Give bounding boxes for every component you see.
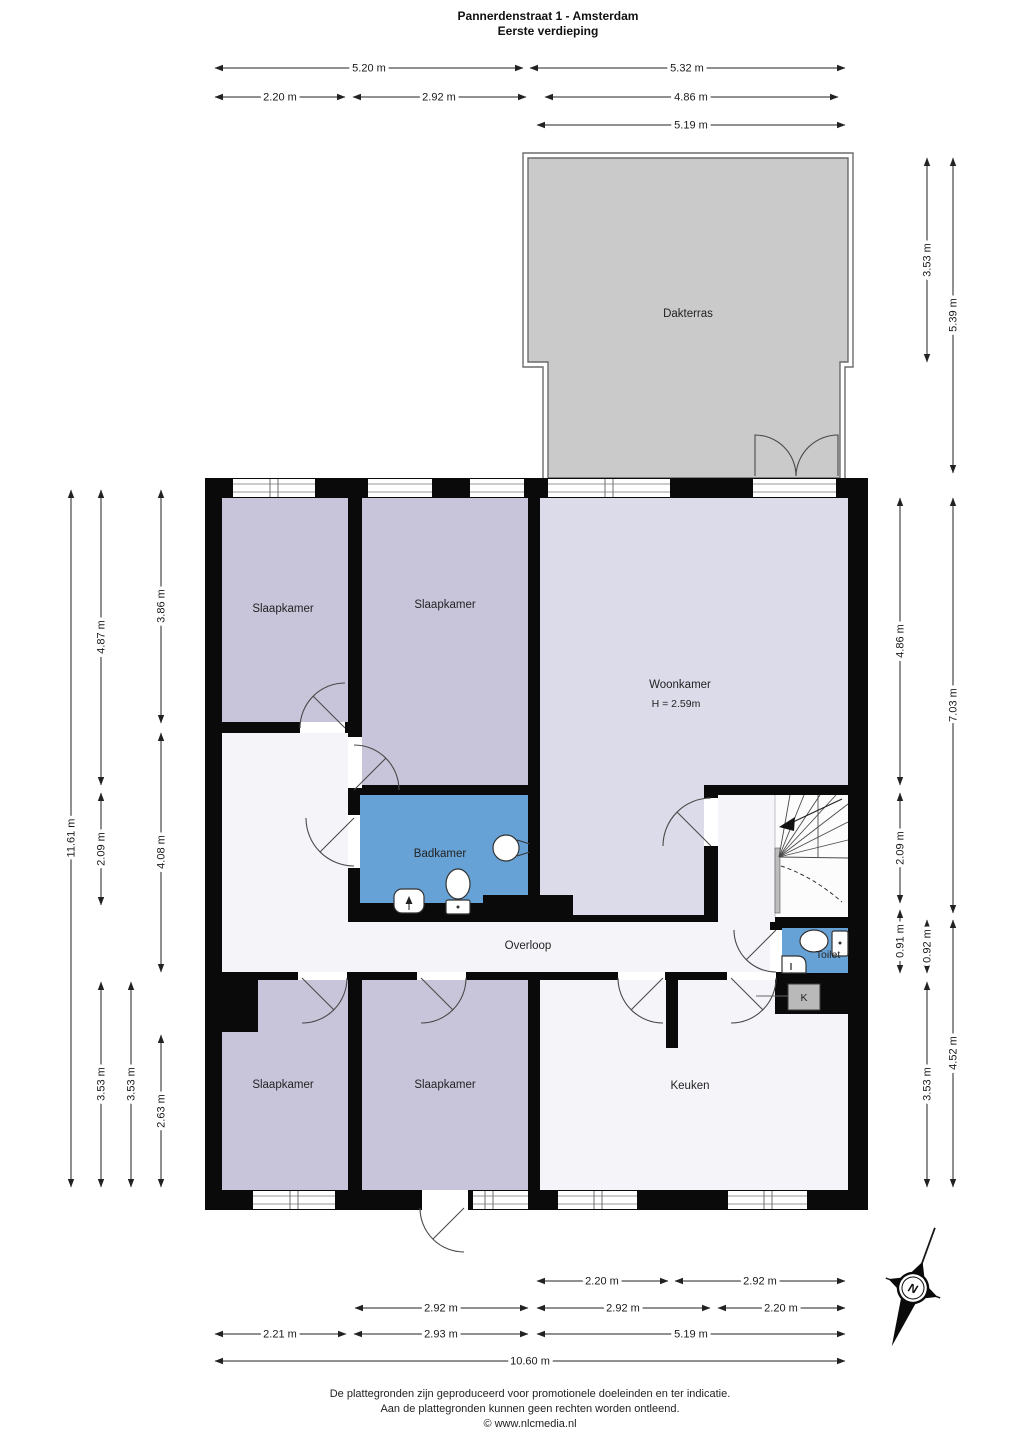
- window-bottom-keuken-1: [558, 1191, 637, 1209]
- dimension-label: 2.20 m: [764, 1303, 798, 1315]
- dimension-label: 3.86 m: [156, 589, 168, 623]
- room-label-slaapkamer-bottom-mid: Slaapkamer: [414, 1079, 476, 1091]
- room-slaapkamer-top-mid: [362, 498, 528, 785]
- window-top-bedroom-mid-2: [470, 479, 524, 497]
- dimension-label: 3.53 m: [922, 1067, 934, 1101]
- wall-chunk-badkamer-corner: [483, 895, 573, 922]
- room-label-slaapkamer-top-mid: Slaapkamer: [414, 599, 476, 611]
- room-label-badkamer: Badkamer: [414, 848, 467, 860]
- dimension-label: 2.21 m: [263, 1329, 297, 1341]
- hall-corridor: [718, 795, 775, 922]
- dimension-label: 0.92 m: [922, 929, 934, 963]
- door-entry-bottom: [420, 1208, 464, 1252]
- room-label-keuken: Keuken: [670, 1080, 709, 1092]
- dimension-label: 5.19 m: [674, 120, 708, 132]
- toilet-fixture-badkamer: [446, 869, 470, 914]
- title-floor: Eerste verdieping: [498, 24, 599, 38]
- stair-banister: [775, 848, 780, 913]
- window-bottom-keuken-2: [728, 1191, 807, 1209]
- dimension-label: 4.86 m: [674, 92, 708, 104]
- room-label-overloop: Overloop: [505, 940, 552, 952]
- footer-disclaimer-2: Aan de plattegronden kunnen geen rechten…: [380, 1403, 679, 1415]
- room-label-ceiling-height: H = 2.59m: [652, 698, 701, 710]
- room-label-woonkamer: Woonkamer: [649, 679, 711, 691]
- title-address: Pannerdenstraat 1 - Amsterdam: [458, 9, 639, 23]
- dimension-label: 11.61 m: [66, 819, 78, 858]
- dimension-label: 2.92 m: [606, 1303, 640, 1315]
- terrace-door-opening: [753, 479, 836, 497]
- room-label-slaapkamer-top-left: Slaapkamer: [252, 603, 314, 615]
- room-label-dakterras: Dakterras: [663, 308, 713, 320]
- dimension-label: 5.19 m: [674, 1329, 708, 1341]
- compass-south-needle: [884, 1297, 916, 1349]
- dimension-label: 7.03 m: [948, 688, 960, 722]
- dimension-label: 2.92 m: [424, 1303, 458, 1315]
- sink-fixture-badkamer: [394, 889, 424, 913]
- room-label-toilet: Toilet: [816, 949, 841, 961]
- window-top-bedroom-mid-1: [368, 479, 432, 497]
- dimension-label: 3.53 m: [922, 243, 934, 277]
- wall-notch-bottom-left: [222, 980, 258, 1032]
- dimension-label: 2.20 m: [263, 92, 297, 104]
- dimension-label: 10.60 m: [510, 1356, 550, 1368]
- dimension-label: 2.93 m: [424, 1329, 458, 1341]
- dimension-label: 4.87 m: [96, 620, 108, 654]
- floor-plan-page: Pannerdenstraat 1 - Amsterdam Eerste ver…: [0, 0, 1024, 1448]
- dimension-label: 4.86 m: [895, 624, 907, 658]
- dimension-label: 2.92 m: [422, 92, 456, 104]
- window-top-bedroom-left: [233, 479, 315, 497]
- corner-basin: [782, 956, 806, 973]
- window-bottom-bedroom-mid: [473, 1191, 528, 1209]
- window-bottom-bedroom-left: [253, 1191, 335, 1209]
- room-label-slaapkamer-bottom-left: Slaapkamer: [252, 1079, 314, 1091]
- wall-stub-keuken: [666, 980, 678, 1048]
- dimension-label: 5.32 m: [670, 63, 704, 75]
- washbasin-round: [493, 835, 519, 861]
- dimension-label: 3.53 m: [126, 1067, 138, 1101]
- dimension-label: 2.20 m: [585, 1276, 619, 1288]
- floor-plan-canvas: Pannerdenstraat 1 - Amsterdam Eerste ver…: [0, 0, 1024, 1448]
- dimension-label: 2.09 m: [895, 831, 907, 865]
- footer-disclaimer-1: De plattegronden zijn geproduceerd voor …: [330, 1388, 731, 1400]
- dimension-label: 2.09 m: [96, 832, 108, 866]
- plan-footer: De plattegronden zijn geproduceerd voor …: [330, 1388, 731, 1430]
- dimension-label: 2.63 m: [156, 1094, 168, 1128]
- dimension-label: 3.53 m: [96, 1067, 108, 1101]
- dimension-label: 4.08 m: [156, 835, 168, 869]
- dimension-label: 0.91 m: [895, 924, 907, 958]
- dimension-label: 2.92 m: [743, 1276, 777, 1288]
- dimension-label: 5.20 m: [352, 63, 386, 75]
- plan-title: Pannerdenstraat 1 - Amsterdam Eerste ver…: [458, 9, 639, 38]
- dakterras-terrace: Dakterras: [523, 153, 853, 483]
- footer-copyright: © www.nlcmedia.nl: [483, 1418, 576, 1430]
- compass-rose: N: [865, 1218, 963, 1356]
- dimension-label: 5.39 m: [948, 298, 960, 332]
- closet-label: K: [800, 992, 807, 1004]
- dimension-label: 4.52 m: [948, 1036, 960, 1070]
- window-top-woonkamer: [548, 479, 670, 497]
